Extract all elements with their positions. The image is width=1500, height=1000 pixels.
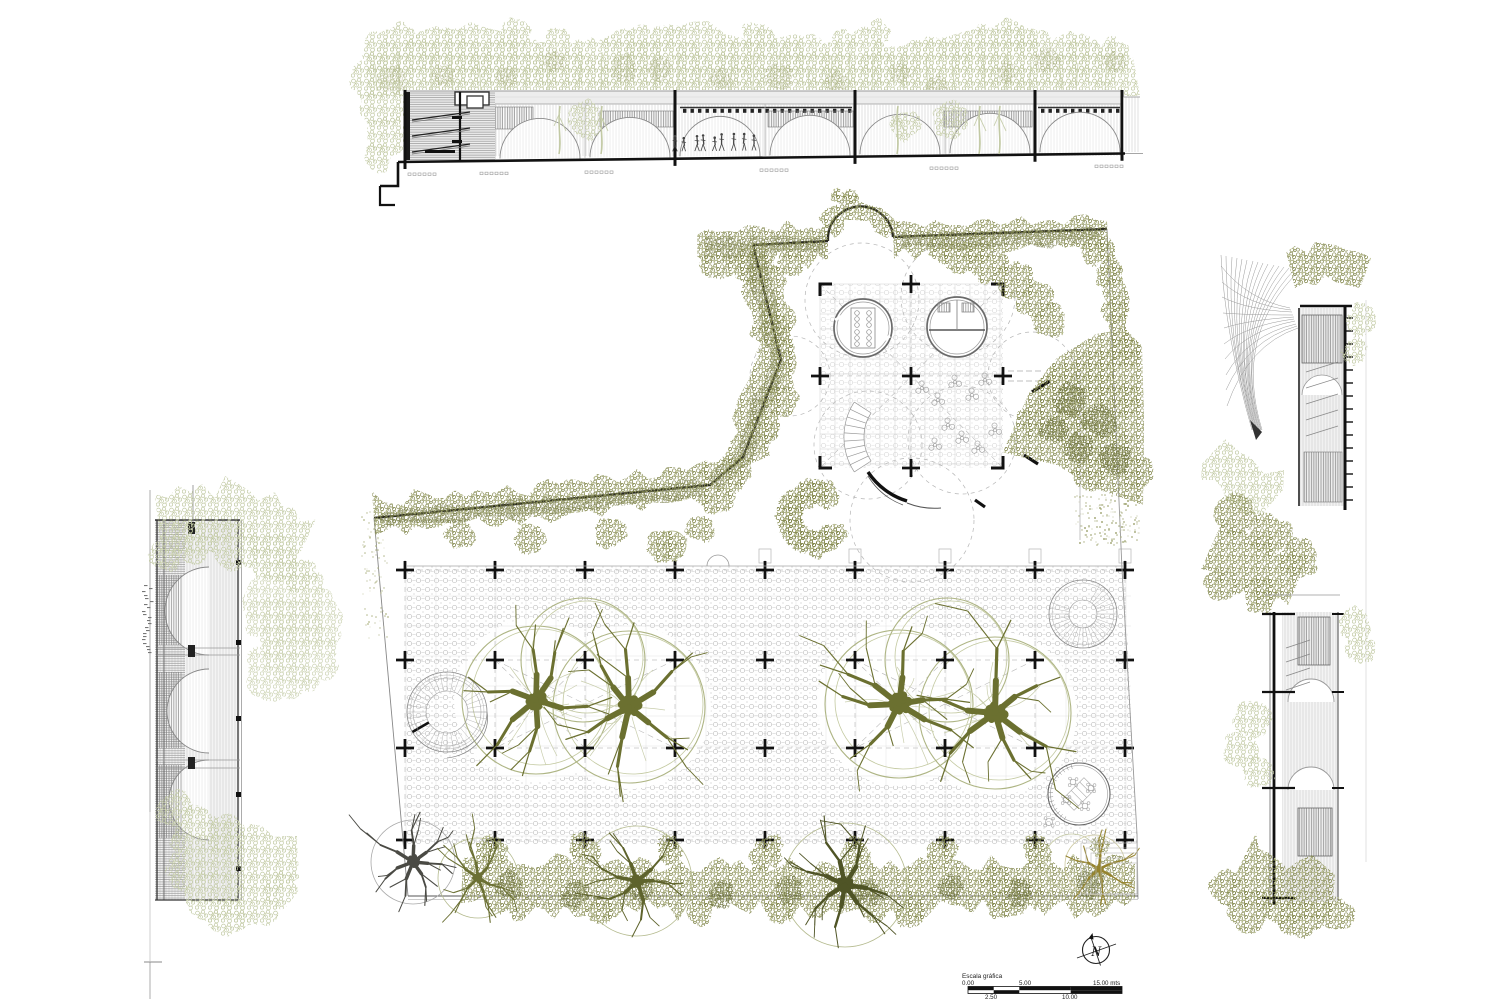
svg-text:Escala gráfica: Escala gráfica xyxy=(962,973,1003,980)
svg-text:0.00: 0.00 xyxy=(962,980,975,987)
svg-text:10.00: 10.00 xyxy=(1062,994,1078,1000)
svg-text:2.50: 2.50 xyxy=(985,994,998,1000)
svg-text:N: N xyxy=(1090,944,1102,960)
svg-text:5.00: 5.00 xyxy=(1019,980,1032,987)
svg-text:15.00 mts: 15.00 mts xyxy=(1093,980,1120,987)
